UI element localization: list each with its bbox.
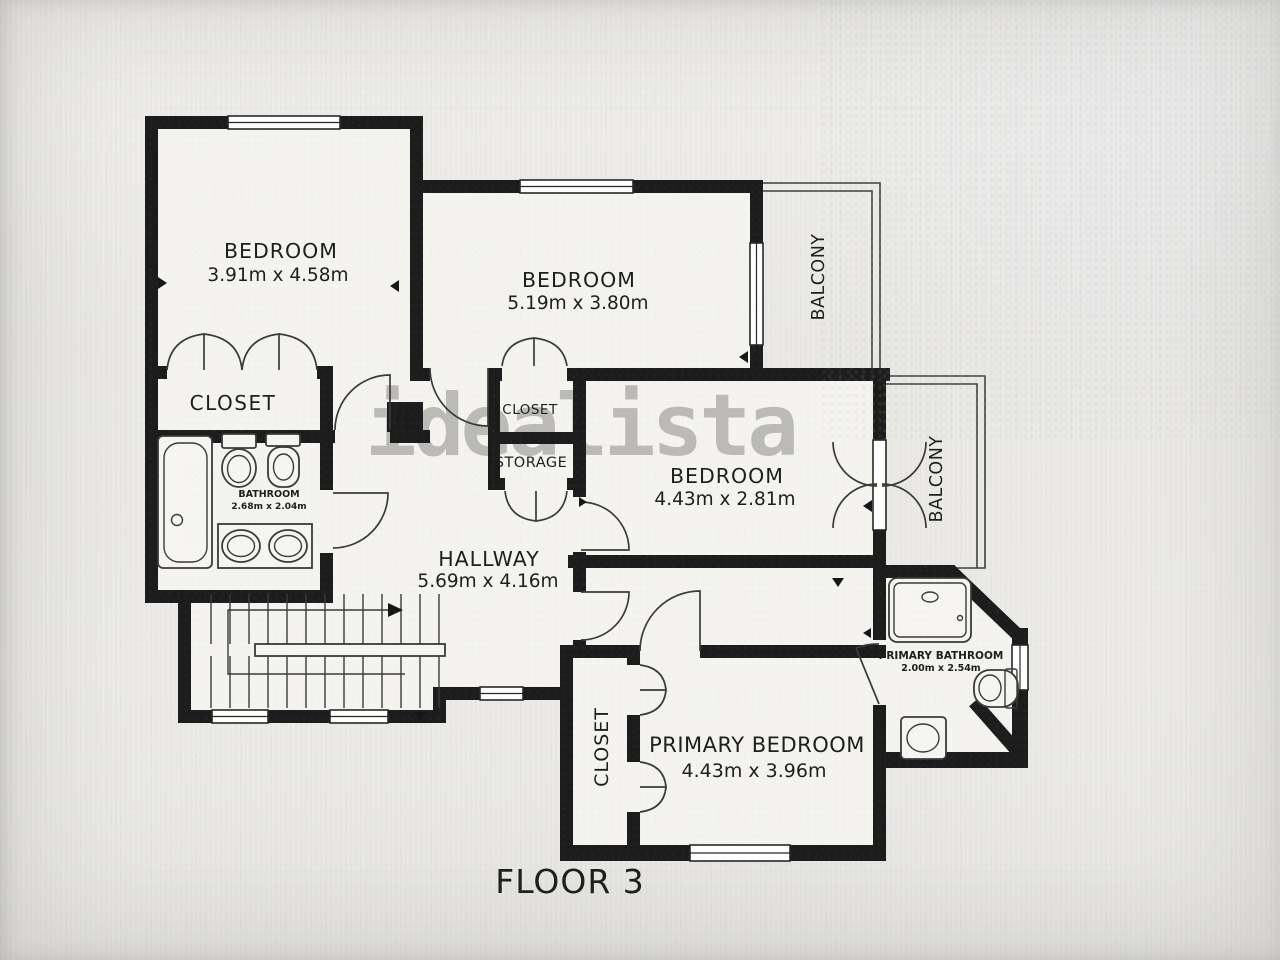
balcony-right-label: BALCONY	[927, 435, 947, 522]
window-icon	[228, 116, 340, 129]
bedroom1-label: BEDROOM	[224, 239, 338, 263]
toilet-icon	[222, 434, 256, 487]
window-icon	[212, 710, 268, 723]
bidet-icon	[266, 434, 300, 487]
sink-icon	[901, 717, 946, 759]
french-door-opening	[873, 440, 886, 530]
window-icon	[480, 687, 523, 700]
closet-bedroom1-label: CLOSET	[190, 391, 277, 415]
primary-bedroom-dims: 4.43m x 3.96m	[682, 760, 827, 782]
window-icon	[690, 845, 790, 861]
storage-label: STORAGE	[495, 455, 568, 471]
stair-handrail	[255, 644, 445, 656]
bedroom2-label: BEDROOM	[522, 268, 636, 292]
bedroom3-dims: 4.43m x 2.81m	[654, 489, 795, 510]
window-icon	[750, 243, 763, 345]
hallway-label: HALLWAY	[438, 547, 540, 571]
window-icon	[330, 710, 388, 723]
bedroom3-label: BEDROOM	[670, 464, 784, 488]
primary-bedroom-label: PRIMARY BEDROOM	[649, 733, 865, 757]
bathroom-label: BATHROOM	[238, 489, 299, 500]
floor-title: FLOOR 3	[495, 862, 645, 901]
shower-tub-icon	[889, 578, 971, 642]
balcony-top-label: BALCONY	[809, 233, 829, 320]
closet-hall-label: CLOSET	[502, 402, 558, 418]
floorplan-photo: idealista	[0, 0, 1280, 960]
bedroom1-dims: 3.91m x 4.58m	[207, 265, 348, 286]
primary-bathroom-dims: 2.00m x 2.54m	[901, 663, 981, 674]
bathroom-dims: 2.68m x 2.04m	[231, 502, 306, 512]
bathtub-icon	[158, 436, 212, 568]
bedroom2-dims: 5.19m x 3.80m	[507, 293, 648, 314]
hallway-dims: 5.69m x 4.16m	[417, 571, 558, 592]
primary-bathroom-label: PRIMARY BATHROOM	[879, 650, 1004, 662]
floor-plan-svg: idealista	[0, 0, 1280, 960]
toilet-icon	[974, 669, 1018, 708]
window-icon	[520, 180, 633, 193]
closet-primary-label: CLOSET	[591, 707, 613, 787]
double-sink-vanity-icon	[218, 524, 312, 568]
